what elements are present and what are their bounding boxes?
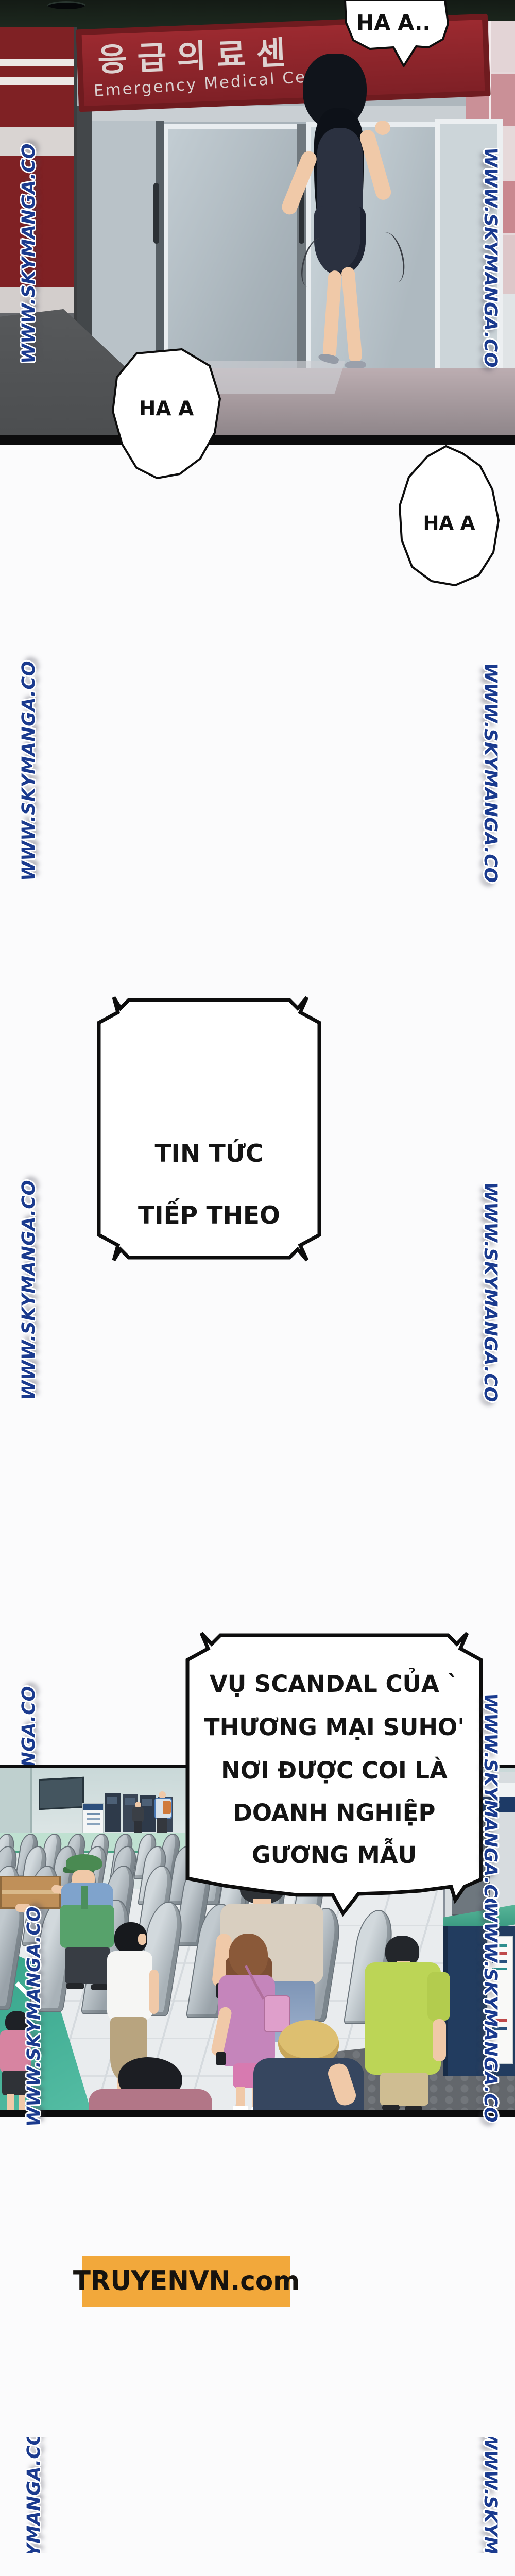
shoe — [405, 2106, 422, 2110]
shoe — [66, 1983, 84, 1989]
person-pink-small — [0, 2011, 35, 2110]
woman-heel-shoe — [345, 361, 366, 368]
watermark-text: WWW.SKYMANGA.CO — [13, 1187, 44, 1393]
panel-border — [0, 435, 515, 445]
next-news-line2: TIẾP THEO — [138, 1198, 280, 1230]
face — [138, 1934, 146, 1945]
speech-bubble-top: HA A.. — [338, 0, 452, 70]
scandal-line1: VỤ SCANDAL CỦA ` — [210, 1668, 459, 1698]
woman-hand — [375, 121, 390, 135]
green-cap — [66, 1854, 102, 1871]
pants — [65, 1947, 110, 1984]
banner-mark — [492, 1960, 507, 1963]
running-woman — [287, 52, 390, 371]
watermark-text: WWW.SKYMANGA.CO — [475, 2437, 506, 2553]
woman-leg — [341, 266, 363, 363]
banner-mark — [492, 2027, 507, 2030]
arm — [149, 1970, 159, 2014]
hand — [15, 1904, 31, 1912]
cardboard-box — [0, 1876, 61, 1909]
watermark-text: WWW.SKYMANGA.CO — [475, 1189, 506, 1395]
site-logo: TRUYENVN.com — [82, 2256, 290, 2307]
banner-mark — [492, 1968, 507, 1970]
speech-bubble-mid: HA A — [105, 348, 228, 482]
machine-banner — [487, 1936, 513, 2064]
site-logo-text: TRUYENVN.com — [87, 2256, 286, 2307]
watermark-text: WWW.SKYMANGA.CO — [475, 670, 506, 876]
stripe — [0, 287, 77, 313]
comic-page: 응급의료센 Emergency Medical Center HA A.. — [0, 0, 515, 2576]
tee-shirt — [107, 1951, 152, 2020]
scandal-line5: GƯƠNG MẪU — [252, 1838, 417, 1869]
woman-heel-shoe — [318, 352, 340, 365]
next-news-line1: TIN TỨC — [154, 1140, 263, 1168]
red-panel — [0, 156, 77, 287]
sneaker — [233, 2106, 248, 2110]
speech-bubble-top-text: HA A.. — [356, 10, 431, 35]
panel-border — [0, 2110, 515, 2117]
caption-box-next-news: TIN TỨC TIẾP THEO — [89, 991, 330, 1277]
rose-tee — [89, 2089, 212, 2110]
box-tape — [2, 1890, 59, 1894]
phone — [216, 2052, 226, 2065]
pink-top — [0, 2030, 31, 2073]
khaki-pants — [380, 2073, 428, 2106]
apron-strap — [81, 1886, 88, 1909]
banner-mark — [492, 1952, 507, 1955]
stripe — [0, 77, 77, 85]
scandal-line3: NƠI ĐƯỢC COI LÀ — [221, 1757, 448, 1784]
person-lime — [356, 1936, 452, 2110]
person-blonde — [253, 2020, 364, 2110]
watermark-text: WWW.SKYMANGA.CO — [19, 2437, 49, 2553]
ceiling-vent-icon — [47, 1, 85, 9]
hair — [5, 2011, 29, 2032]
woman-leg — [322, 270, 342, 359]
leg — [236, 2087, 245, 2107]
shoe — [382, 2105, 400, 2110]
leg — [19, 2095, 25, 2110]
arm — [433, 2019, 446, 2061]
hospital-panel: 응급의료센 Emergency Medical Center HA A.. — [0, 0, 515, 435]
skirt — [2, 2071, 30, 2095]
scandal-line4: DOANH NGHIỆP — [233, 1799, 436, 1826]
speech-bubble-low-text: HA A — [423, 512, 475, 534]
person-rose — [89, 2057, 212, 2110]
stripe — [0, 59, 77, 66]
stripe — [0, 127, 77, 156]
caption-box-scandal: VỤ SCANDAL CỦA ` THƯƠNG MẠI SUHO' NƠI ĐƯ… — [173, 1624, 495, 1923]
scandal-line2: THƯƠNG MẠI SUHO' — [204, 1714, 465, 1741]
door-handle — [153, 183, 159, 244]
speech-bubble-low: HA A — [385, 445, 508, 592]
speech-bubble-mid-text: HA A — [139, 397, 194, 420]
leg — [7, 2094, 14, 2110]
banner-mark — [492, 2019, 507, 2022]
sleeve — [427, 1972, 450, 2021]
banner-mark — [492, 1944, 507, 1947]
watermark-text: WWW.SKYMANGA.CO — [13, 668, 44, 874]
